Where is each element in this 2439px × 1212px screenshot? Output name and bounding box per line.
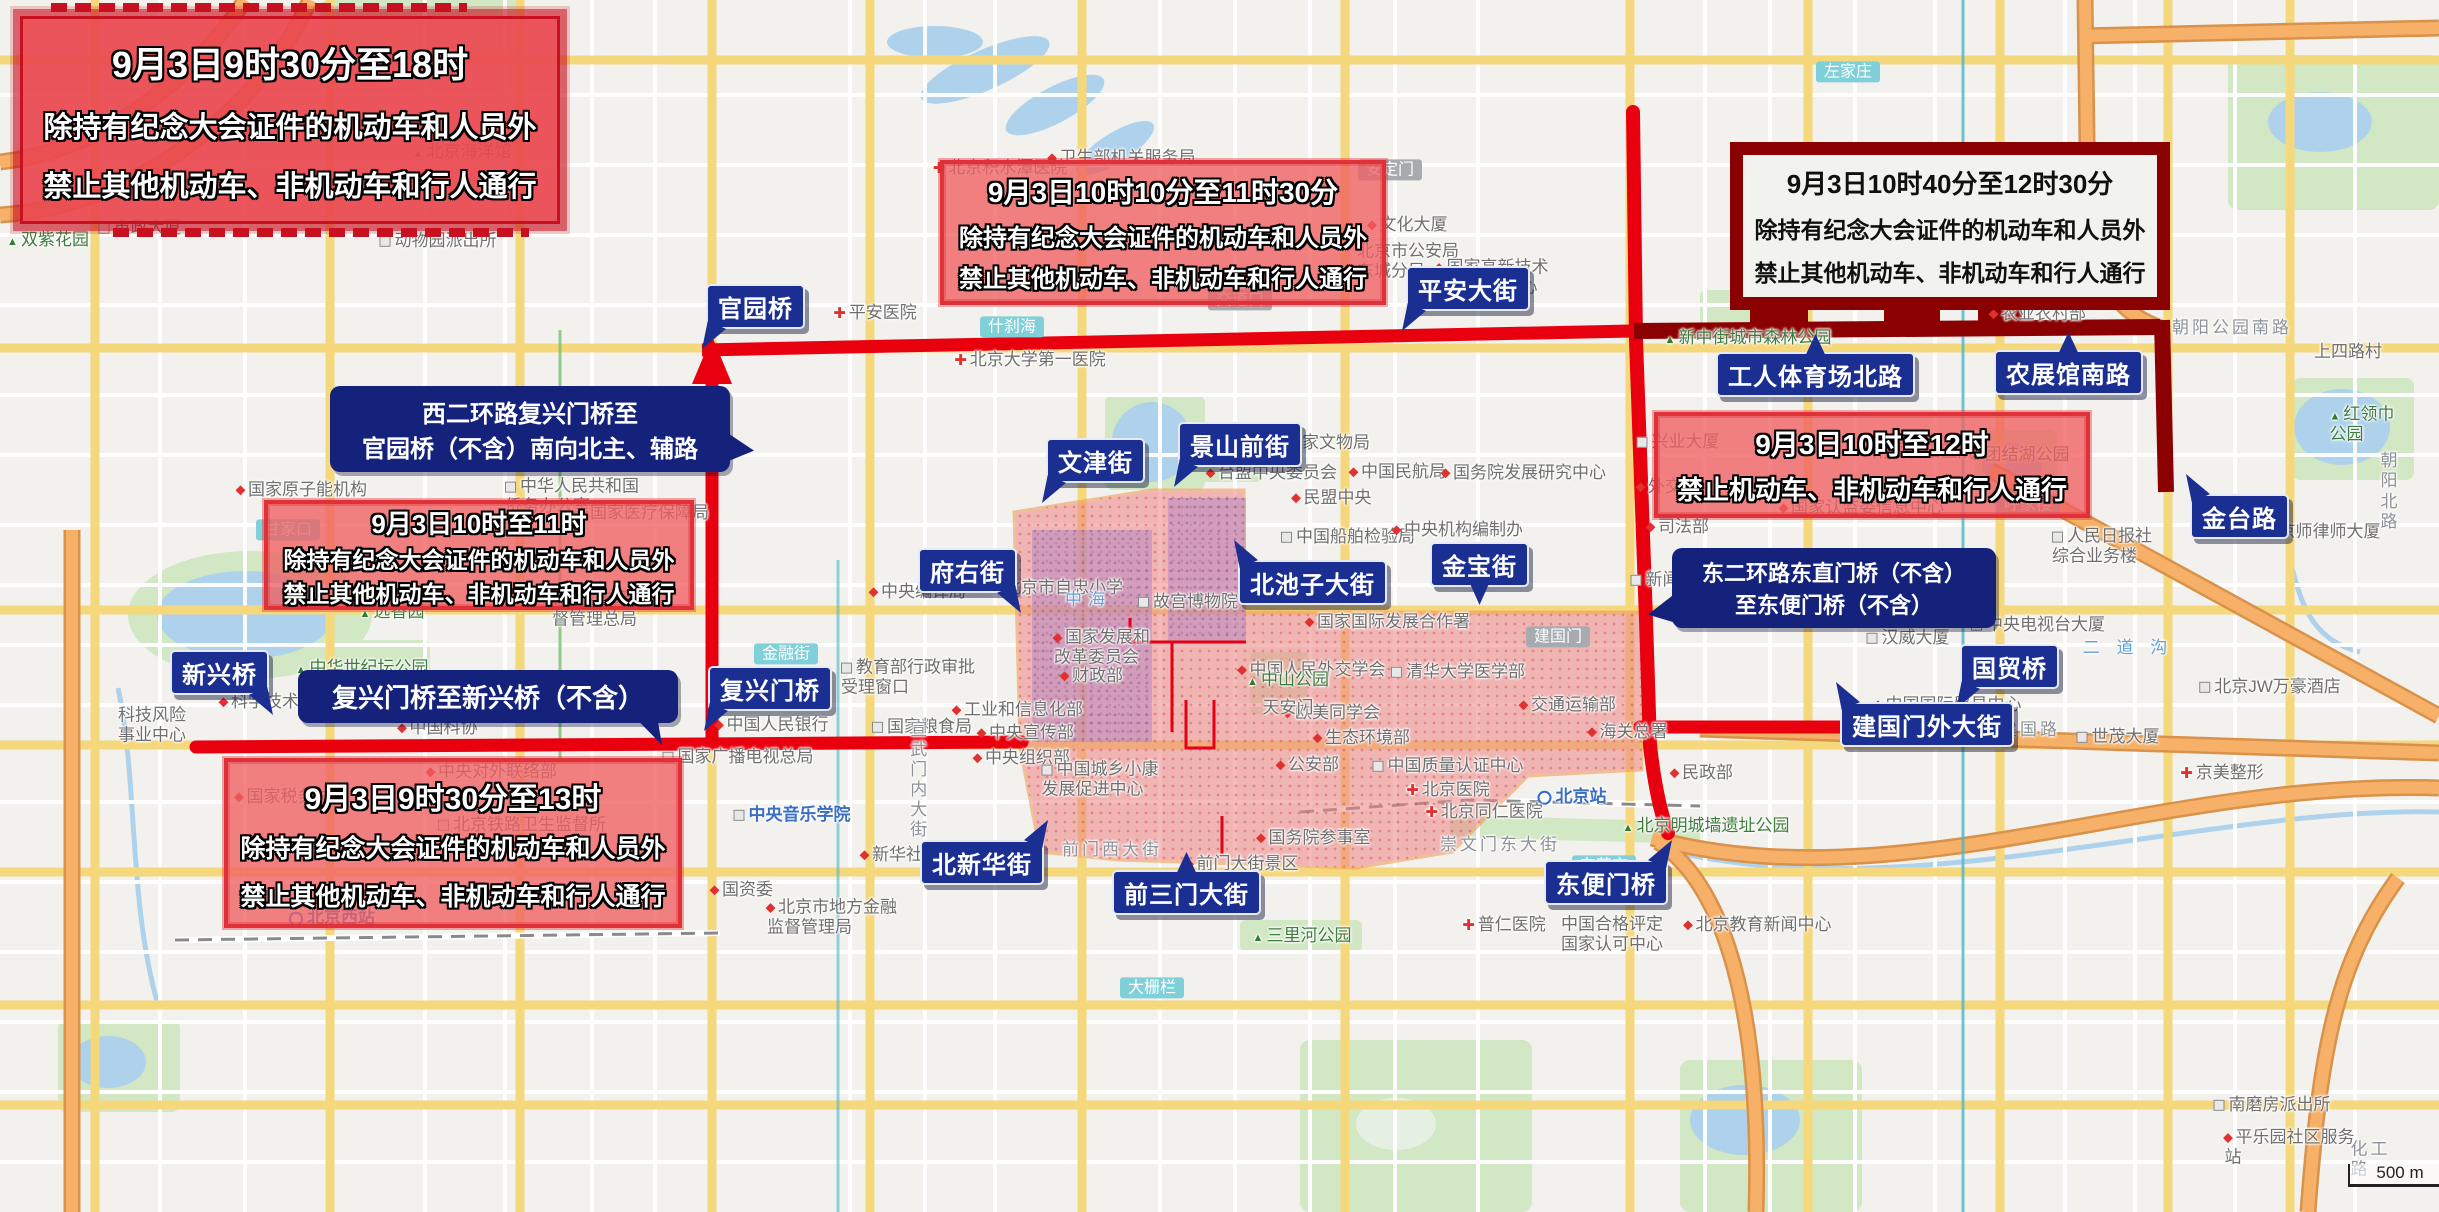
cross-icon: ✚	[1425, 804, 1438, 821]
restriction-banner-line: 9月3日10时至12时	[1755, 423, 1988, 463]
poi-label: 天安门	[1263, 698, 1314, 718]
dot-icon	[766, 903, 776, 913]
poi-label: ✚北京同仁医院	[1425, 802, 1543, 822]
poi-label: 公安部	[1277, 755, 1339, 775]
tree-icon: ▲	[1253, 932, 1264, 944]
poi-label: 世茂大厦	[2077, 727, 2160, 747]
street-sign-label: 官园桥	[706, 284, 805, 329]
poi-label: 左家庄	[1816, 61, 1880, 82]
poi-label: 北京教育新闻中心	[1685, 915, 1832, 935]
poi-label: 宣武门内大街	[906, 720, 926, 840]
street-sign-label: 文津街	[1046, 438, 1145, 483]
poi-label: 国务院参事室	[1258, 828, 1371, 848]
street-sign-label: 复兴门桥	[708, 666, 832, 711]
poi-label: 南磨房派出所	[2214, 1095, 2331, 1115]
poi-label: 司法部	[1647, 517, 1709, 537]
poi-label: 工业和信息化部	[953, 700, 1083, 720]
cross-icon: ✚	[833, 305, 846, 322]
poi-label: 中国城乡小康 发展促进中心	[1042, 760, 1159, 801]
restriction-banner-line: 除持有纪念大会证件的机动车和人员外	[43, 104, 536, 146]
poi-label: 人民日报社 综合业务楼	[2052, 527, 2152, 568]
bld-icon	[2214, 1100, 2225, 1111]
poi-label: 北京站	[1538, 787, 1607, 807]
street-sign-label: 金宝街	[1430, 542, 1529, 587]
restriction-banner-line: 除持有纪念大会证件的机动车和人员外	[1755, 211, 2146, 245]
dot-icon	[1519, 700, 1529, 710]
bld-icon	[99, 223, 110, 234]
bld-icon	[1867, 633, 1878, 644]
dot-icon	[1305, 617, 1315, 627]
dot-icon	[1060, 671, 1070, 681]
restriction-banner-line: 除持有纪念大会证件的机动车和人员外	[284, 541, 675, 575]
street-sign-label: 前三门大街	[1112, 870, 1261, 915]
poi-label: 朝阳北路	[2381, 451, 2420, 533]
route-callout-line: 复兴门桥至新兴桥（不含）	[312, 678, 664, 715]
dot-icon	[710, 885, 720, 895]
tree-icon: ▲	[1665, 334, 1676, 346]
dot-icon	[1053, 633, 1063, 643]
bld-icon	[1138, 597, 1149, 608]
dot-icon	[977, 728, 987, 738]
poi-label: 教育部行政审批 受理窗口	[841, 658, 975, 699]
tree-icon: ▲	[1247, 676, 1258, 688]
poi-label: ▲北京明城墙遗址公园	[1623, 816, 1790, 836]
restriction-banner-line: 禁止其他机动车、非机动车和行人通行	[284, 575, 675, 609]
bld-icon	[1042, 765, 1053, 776]
restriction-banner: 9月3日9时30分至13时除持有纪念大会证件的机动车和人员外禁止其他机动车、非机…	[224, 758, 682, 928]
street-sign-label: 北池子大街	[1238, 560, 1387, 605]
poi-label: 中国民航局	[1350, 462, 1446, 482]
dot-icon	[1683, 920, 1693, 930]
tree-icon: ▲	[2330, 411, 2341, 423]
restriction-banner-line: 除持有纪念大会证件的机动车和人员外	[959, 218, 1367, 253]
scale-bar-text: 500 m	[2376, 1163, 2423, 1182]
restriction-banner-line: 9月3日9时30分至13时	[305, 774, 602, 818]
street-sign-label: 东便门桥	[1544, 860, 1668, 905]
poi-label: 二 道 沟	[2083, 638, 2173, 658]
dot-icon	[1349, 467, 1359, 477]
street-sign-label: 金台路	[2190, 494, 2289, 539]
bld-icon	[841, 663, 852, 674]
restriction-banner-line: 9月3日10时至11时	[371, 504, 586, 541]
restriction-banner-line: 除持有纪念大会证件的机动车和人员外	[240, 829, 665, 865]
dot-icon	[1989, 309, 1999, 319]
cross-icon: ✚	[1406, 782, 1419, 799]
bld-icon	[2077, 732, 2088, 743]
poi-label: 中央宣传部	[978, 723, 1074, 743]
route-callout-line: 西二环路复兴门桥至	[344, 394, 716, 429]
scale-bar: 500 m	[2348, 1164, 2439, 1187]
street-sign-label: 平安大街	[1406, 266, 1530, 311]
poi-label: ✚北京大学第一医院	[954, 350, 1106, 370]
dot-icon	[1291, 493, 1301, 503]
restriction-banner: 9月3日9时30分至18时除持有纪念大会证件的机动车和人员外禁止其他机动车、非机…	[20, 16, 560, 224]
poi-label: ▲中山公园	[1247, 670, 1329, 690]
restriction-banner-line: 禁止其他机动车、非机动车和行人通行	[1755, 254, 2146, 288]
bld-icon	[872, 722, 883, 733]
dot-icon	[869, 587, 879, 597]
street-sign-label: 景山前街	[1178, 422, 1302, 467]
poi-label: ✚普仁医院	[1462, 915, 1546, 935]
dot-icon	[973, 753, 983, 763]
poi-label: 清华大学医学部	[1391, 662, 1525, 682]
dot-icon	[1313, 733, 1323, 743]
dot-icon	[2223, 1133, 2233, 1143]
bld-icon	[734, 810, 745, 821]
poi-label: ▲新中街城市森林公园	[1665, 328, 1832, 348]
bld-icon	[380, 236, 391, 247]
poi-label: ✚北京医院	[1406, 780, 1490, 800]
poi-label: 上四路村	[2314, 342, 2382, 362]
tree-icon: ▲	[1623, 822, 1634, 834]
poi-label: 什刹海	[980, 316, 1044, 337]
poi-label: 国务院发展研究中心	[1442, 463, 1606, 483]
dot-icon	[1392, 525, 1402, 535]
restriction-banner-line: 禁止其他机动车、非机动车和行人通行	[240, 877, 665, 913]
route-callout-line: 至东便门桥（不含）	[1686, 588, 1982, 620]
poi-label: 平乐园社区服务站	[2225, 1128, 2368, 1169]
restriction-banner-line: 禁止其他机动车、非机动车和行人通行	[959, 259, 1367, 294]
restriction-banner: 9月3日10时10分至11时30分除持有纪念大会证件的机动车和人员外禁止其他机动…	[940, 160, 1386, 305]
dot-icon	[1636, 482, 1646, 492]
restriction-banner: 9月3日10时至11时除持有纪念大会证件的机动车和人员外禁止其他机动车、非机动车…	[264, 500, 694, 610]
poi-label: ▲红领巾公园	[2330, 405, 2403, 446]
poi-label: 金融街	[754, 643, 818, 664]
cross-icon: ✚	[954, 352, 967, 369]
poi-label: 国家发展和 改革委员会	[1054, 628, 1150, 669]
map-canvas[interactable]: ✚北京积水潭医院卫生部机关服务局安定门交道口文化大厦北京市公安局 东城分局国家高…	[0, 0, 2439, 1212]
restriction-banner-line: 禁止机动车、非机动车和行人通行	[1677, 470, 2067, 507]
poi-label: 交通运输部	[1520, 695, 1616, 715]
dot-icon	[714, 720, 724, 730]
street-sign-label: 新兴桥	[170, 650, 269, 695]
poi-label: 财政部	[1061, 666, 1123, 686]
cross-icon: ✚	[1462, 917, 1475, 934]
dot-icon	[1441, 468, 1451, 478]
dot-icon	[219, 697, 229, 707]
poi-label: 中海	[1065, 590, 1111, 610]
poi-label: ▲双紫花园	[7, 230, 89, 250]
route-callout: 复兴门桥至新兴桥（不含）	[298, 670, 678, 723]
street-sign-label: 北新华街	[920, 840, 1044, 885]
dot-icon	[1276, 760, 1286, 770]
dot-icon	[1587, 727, 1597, 737]
street-sign-label: 农展馆南路	[1994, 350, 2143, 395]
poi-label: 中国质量认证中心	[1373, 756, 1524, 776]
poi-label: 朝阳公园南路	[2172, 318, 2292, 338]
poi-label: 民盟中央	[1293, 488, 1372, 508]
route-callout-line: 东二环路东直门桥（不含）	[1686, 556, 1982, 588]
poi-label: 国家广播电视总局	[663, 747, 814, 767]
poi-label: 中央音乐学院	[734, 805, 851, 825]
street-sign-label: 工人体育场北路	[1716, 352, 1915, 397]
bld-icon	[1373, 761, 1384, 772]
bld-icon	[2052, 532, 2063, 543]
route-callout: 西二环路复兴门桥至官园桥（不含）南向北主、辅路	[330, 386, 730, 472]
restriction-banner-line: 9月3日9时30分至18时	[112, 36, 468, 88]
bld-icon	[1631, 575, 1642, 586]
dot-icon	[1237, 665, 1247, 675]
poi-label: ✚京美整形	[2180, 763, 2264, 783]
bld-icon	[1637, 437, 1648, 448]
poi-label: 国家国际发展合作署	[1306, 612, 1470, 632]
poi-label: 中国人民银行	[716, 715, 829, 735]
poi-label: 科技风险 事业中心	[118, 706, 186, 747]
cross-icon: ✚	[2180, 765, 2193, 782]
poi-label: 北京JW万豪酒店	[2199, 677, 2341, 697]
poi-label: 民政部	[1671, 763, 1733, 783]
bld-icon	[1281, 532, 1292, 543]
poi-label: 北京市地方金融 监督管理局	[767, 898, 897, 939]
dot-icon	[1646, 522, 1656, 532]
poi-label: 中央机构编制办	[1393, 520, 1523, 540]
dot-icon	[952, 705, 962, 715]
poi-label: ✚平安医院	[833, 303, 917, 323]
dot-icon	[1256, 833, 1266, 843]
dot-icon	[1670, 768, 1680, 778]
poi-label: ▲三里河公园	[1253, 926, 1352, 946]
restriction-banner-line: 9月3日10时10分至11时30分	[988, 171, 1338, 211]
poi-label: 崇文门东大街	[1440, 835, 1560, 855]
poi-label: 汉威大厦	[1867, 628, 1950, 648]
poi-label: 建国门	[1526, 626, 1590, 647]
bld-icon	[2199, 682, 2210, 693]
dot-icon	[1206, 468, 1216, 478]
street-sign-label: 建国门外大街	[1840, 702, 2014, 747]
street-sign-label: 国贸桥	[1960, 644, 2059, 689]
street-sign-label: 府右街	[918, 548, 1017, 593]
poi-label: 新华社	[861, 845, 923, 865]
restriction-banner-line: 禁止其他机动车、非机动车和行人通行	[43, 163, 536, 205]
poi-label: 中国合格评定 国家认可中心	[1561, 915, 1663, 956]
restriction-banner: 9月3日10时40分至12时30分除持有纪念大会证件的机动车和人员外禁止其他机动…	[1730, 142, 2170, 310]
poi-label: 故宫博物院	[1138, 592, 1238, 612]
tree-icon: ▲	[7, 236, 18, 248]
poi-label: 国家原子能机构	[237, 480, 367, 500]
poi-label: 国资委	[711, 880, 773, 900]
dot-icon	[860, 850, 870, 860]
restriction-banner: 9月3日10时至12时禁止机动车、非机动车和行人通行	[1654, 412, 2090, 518]
bld-icon	[1391, 667, 1402, 678]
dot-icon	[397, 723, 407, 733]
poi-label: 大栅栏	[1120, 977, 1184, 998]
poi-label: 前门西大街	[1062, 840, 1162, 860]
restriction-banner-line: 9月3日10时40分至12时30分	[1787, 164, 2114, 201]
route-callout-line: 官园桥（不含）南向北主、辅路	[344, 429, 716, 464]
poi-label: 生态环境部	[1314, 728, 1410, 748]
poi-label: 海关总署	[1589, 722, 1668, 742]
route-callout: 东二环路东直门桥（不含）至东便门桥（不含）	[1672, 548, 1996, 628]
bld-icon	[505, 482, 516, 493]
dot-icon	[236, 485, 246, 495]
